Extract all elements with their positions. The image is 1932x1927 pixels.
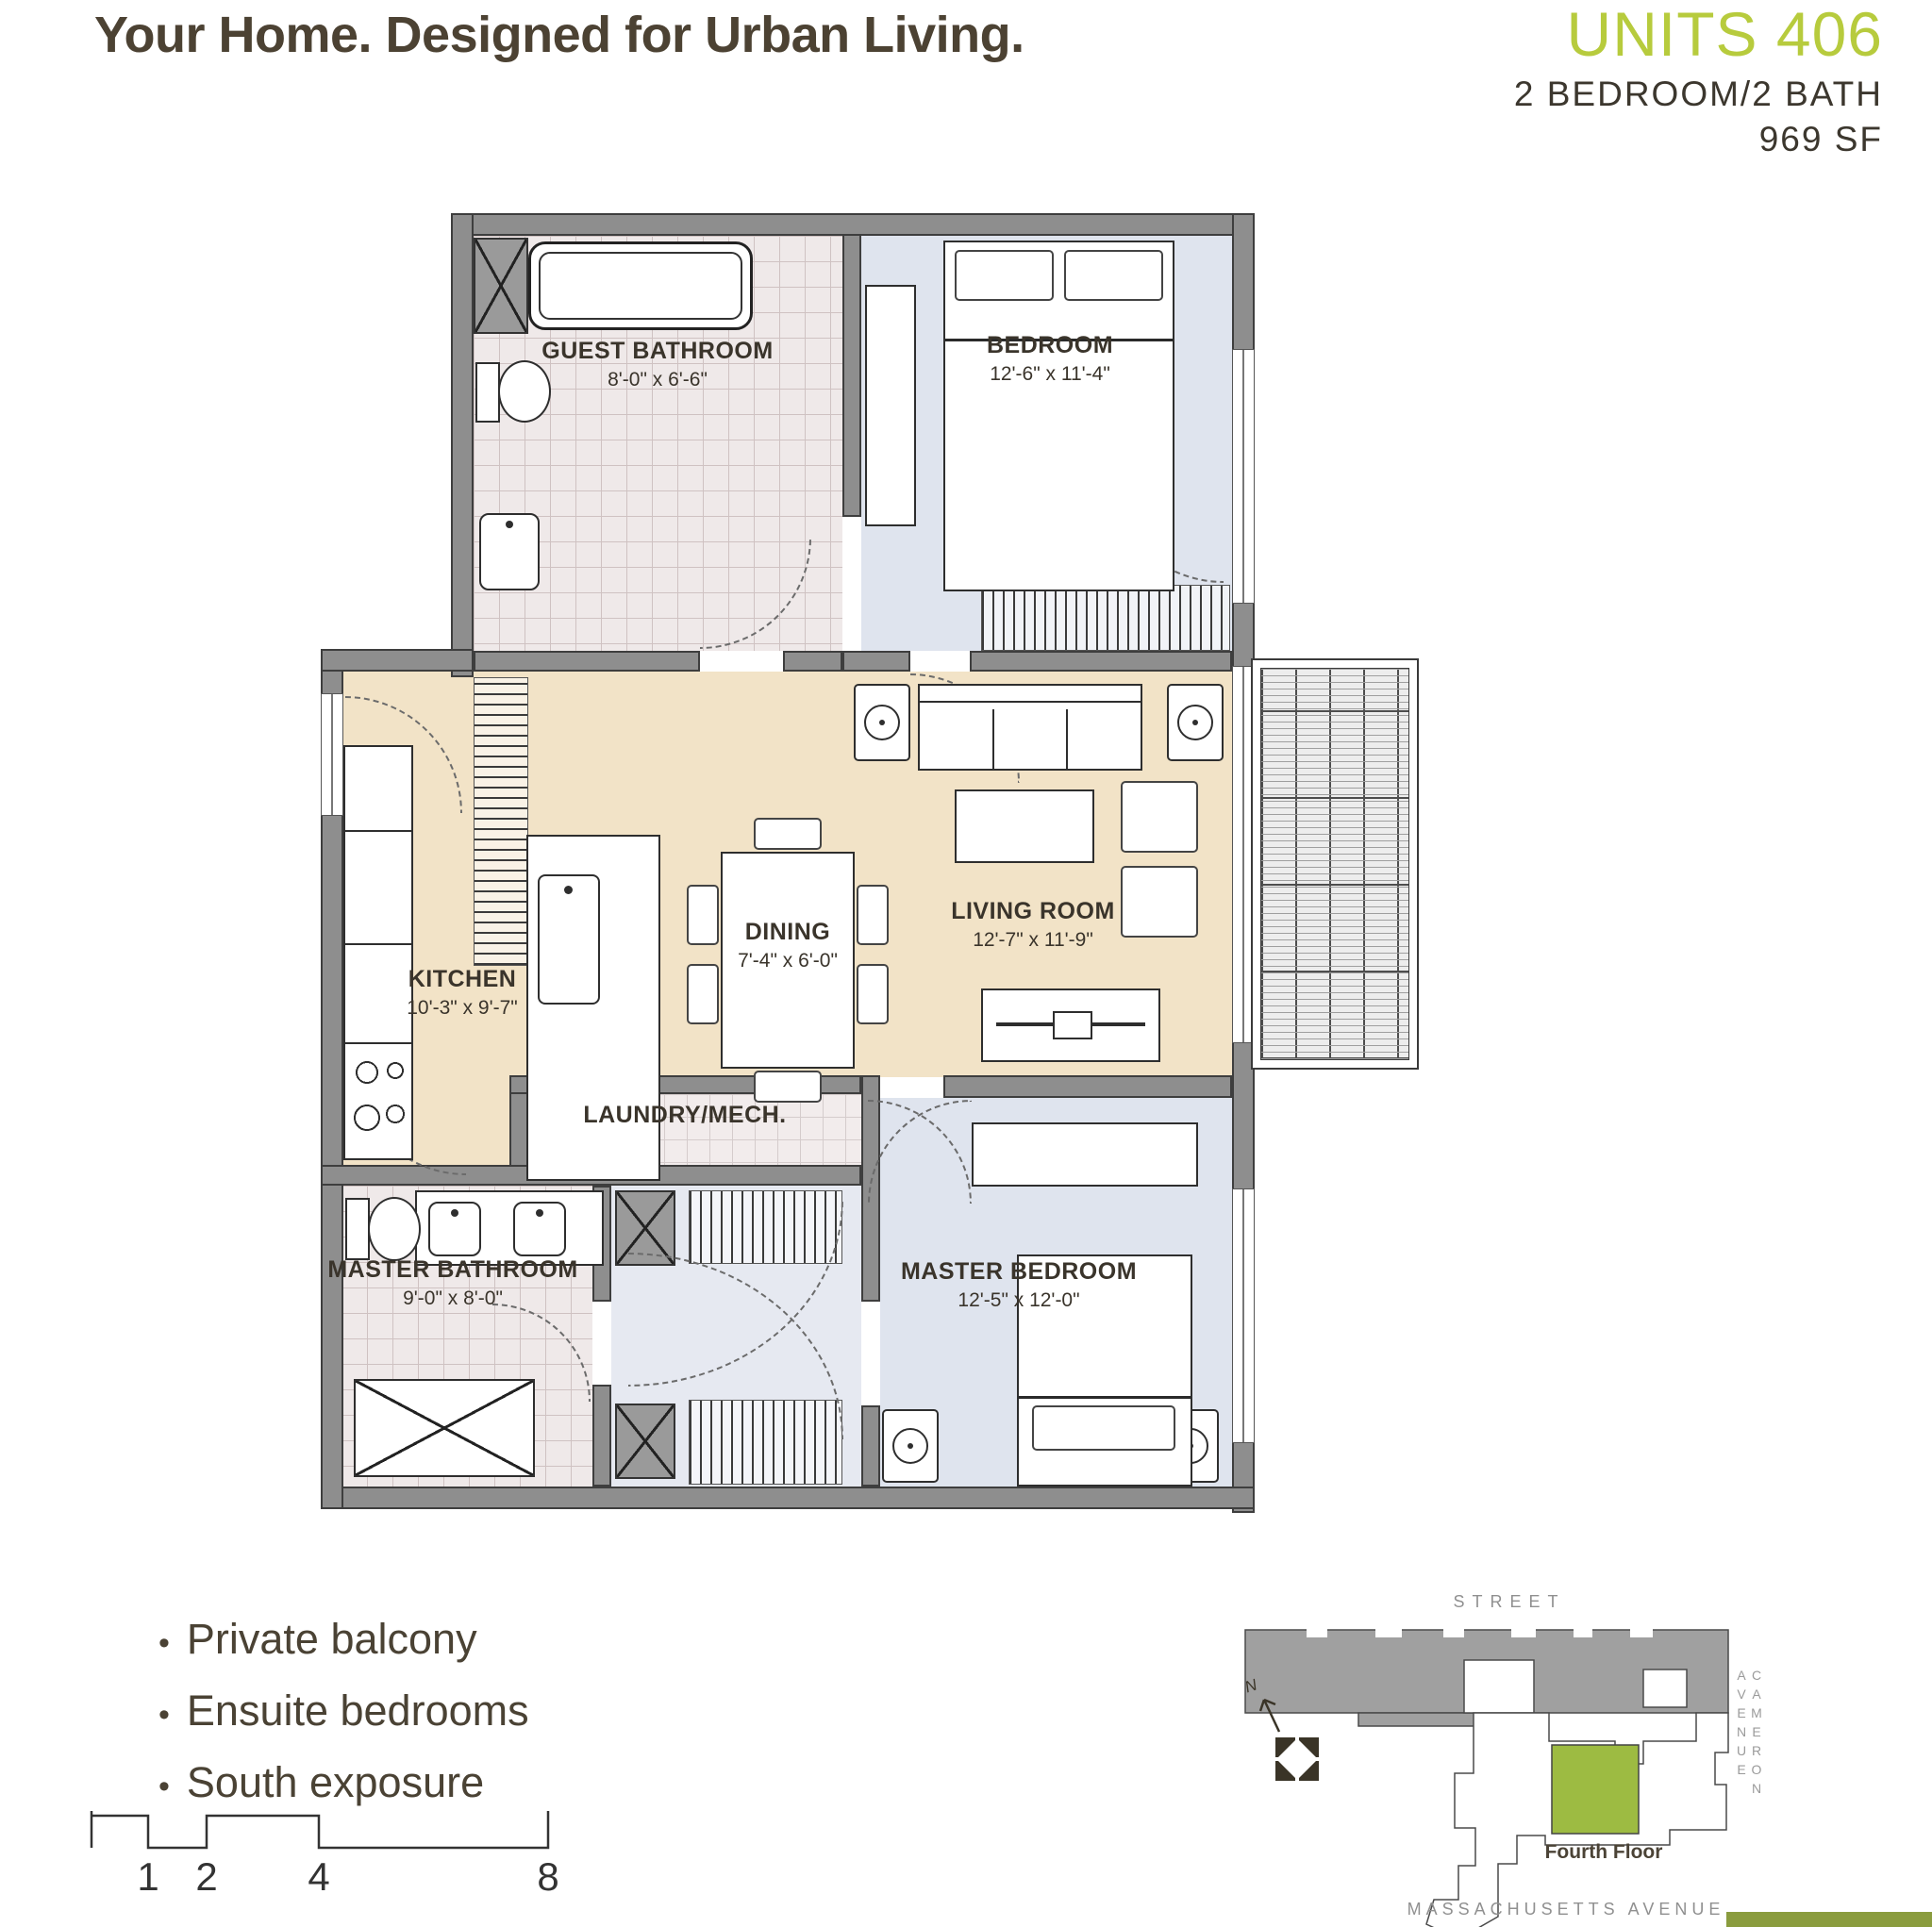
speaker <box>882 1409 939 1483</box>
label-guest-bathroom: GUEST BATHROOM 8'-0" x 6'-6" <box>516 336 799 392</box>
unit-number: UNITS 406 <box>1514 2 1883 67</box>
flyer-page: { "header": { "tagline": "Your Home. Des… <box>0 0 1932 1927</box>
label-laundry: LAUNDRY/MECH. <box>543 1100 826 1131</box>
tv-console <box>981 988 1160 1062</box>
bullet-icon: • <box>158 1697 170 1733</box>
refrigerator <box>343 830 413 945</box>
bathtub-inner <box>539 252 742 320</box>
building-gray-tab <box>1358 1713 1491 1726</box>
unit-highlight <box>1552 1745 1639 1834</box>
label-master-bathroom: MASTER BATHROOM 9'-0" x 8'-0" <box>321 1254 585 1311</box>
north-arrow-icon <box>1257 1692 1285 1736</box>
toilet-bowl <box>368 1197 421 1261</box>
vanity-sink <box>513 1202 566 1256</box>
feature-item: •South exposure <box>158 1758 529 1807</box>
scale-bar-numbers: 1 2 4 8 <box>57 1854 585 1903</box>
unit-spec: 2 BEDROOM/2 BATH <box>1514 75 1883 114</box>
pillow <box>955 250 1054 301</box>
wall <box>321 1487 1255 1509</box>
feature-item: •Ensuite bedrooms <box>158 1686 529 1736</box>
shaft <box>474 238 528 334</box>
pillow <box>1064 250 1163 301</box>
entry-window <box>321 693 343 816</box>
bullet-icon: • <box>158 1625 170 1661</box>
master-bedroom-window <box>1232 1188 1255 1443</box>
scale-tick: 8 <box>529 1854 567 1900</box>
toilet-tank <box>475 362 500 423</box>
street-label: STREET <box>1387 1592 1632 1612</box>
feature-item: •Private balcony <box>158 1615 529 1664</box>
toilet-tank <box>345 1198 370 1260</box>
wall <box>943 1075 1232 1098</box>
kitchen-cabinet <box>343 745 413 832</box>
speaker <box>1167 684 1224 761</box>
tv-box <box>1053 1011 1092 1039</box>
label-living-room: LIVING ROOM 12'-7" x 11'-9" <box>891 896 1174 953</box>
bed <box>943 241 1174 591</box>
label-master-bedroom: MASTER BEDROOM 12'-5" x 12'-0" <box>877 1256 1160 1313</box>
master-toilet <box>345 1194 421 1262</box>
sofa <box>918 684 1142 771</box>
hall-closet <box>474 677 528 966</box>
cameron-avenue-label: CAMERON AVENUE <box>1734 1668 1764 1903</box>
wall <box>474 651 700 672</box>
wall <box>842 234 861 517</box>
bedroom-dresser <box>865 285 916 526</box>
label-kitchen: KITCHEN 10'-3" x 9'-7" <box>340 964 585 1021</box>
scale-tick: 4 <box>300 1854 338 1900</box>
bullet-icon: • <box>158 1769 170 1804</box>
guest-bathtub <box>528 241 753 330</box>
wall <box>970 651 1232 672</box>
balcony-deck <box>1260 668 1409 1060</box>
scale-tick: 1 <box>129 1854 167 1900</box>
wall <box>592 1385 611 1487</box>
label-dining: DINING 7'-4" x 6'-0" <box>693 917 882 973</box>
bedroom-window <box>1232 349 1255 604</box>
unit-area: 969 SF <box>1514 120 1883 159</box>
massachusetts-avenue-label: MASSACHUSETTS AVENUE <box>1377 1900 1755 1919</box>
chair <box>754 1071 822 1103</box>
scale-bar-line <box>92 1811 548 1848</box>
scale-tick: 2 <box>188 1854 225 1900</box>
bedroom-closet <box>981 585 1230 651</box>
label-bedroom: BEDROOM 12'-6" x 11'-4" <box>908 330 1191 387</box>
wall <box>861 1405 880 1487</box>
stove <box>343 1042 413 1160</box>
unit-info: UNITS 406 2 BEDROOM/2 BATH 969 SF <box>1514 2 1883 159</box>
page-title: Your Home. Designed for Urban Living. <box>94 6 1024 64</box>
building-courtyard <box>1464 1660 1534 1713</box>
master-dresser <box>972 1122 1198 1187</box>
blanket-line <box>1019 1396 1191 1399</box>
footer-accent-bar <box>1726 1912 1932 1927</box>
wall <box>451 213 1255 236</box>
features-list: •Private balcony •Ensuite bedrooms •Sout… <box>158 1615 529 1830</box>
wall <box>783 651 842 672</box>
building-courtyard <box>1643 1670 1687 1707</box>
chair <box>754 818 822 850</box>
wall <box>842 651 910 672</box>
wall <box>451 213 474 677</box>
balcony <box>1251 658 1419 1070</box>
speaker <box>854 684 910 761</box>
guest-sink <box>479 513 540 590</box>
compass-icon <box>1275 1737 1319 1781</box>
vanity-sink <box>428 1202 481 1256</box>
fourth-floor-label: Fourth Floor <box>1509 1841 1698 1864</box>
bed-footboard <box>1032 1405 1175 1451</box>
master-bathtub <box>354 1379 535 1477</box>
armchair <box>1121 781 1198 853</box>
floor-plan: GUEST BATHROOM 8'-0" x 6'-6" BEDROOM 12'… <box>317 209 1421 1520</box>
wall <box>321 649 474 672</box>
coffee-table <box>955 789 1094 863</box>
